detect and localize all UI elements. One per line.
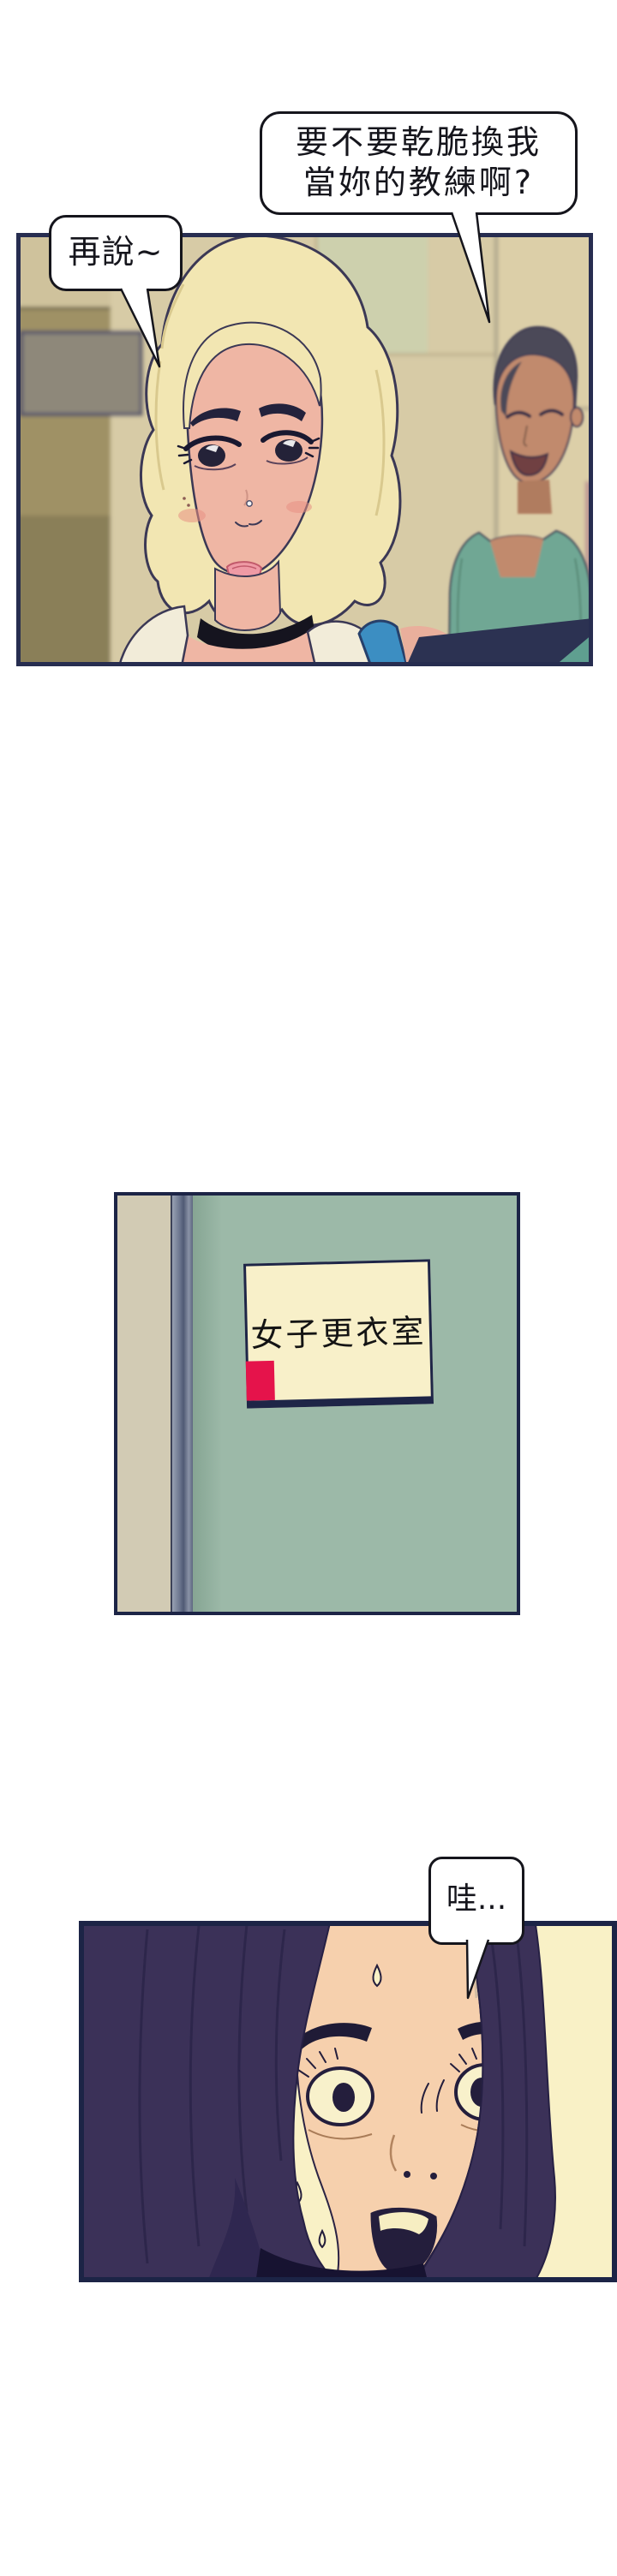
door-frame-strip <box>117 1196 172 1612</box>
speech-text-line1: 要不要乾脆換我 <box>262 122 575 163</box>
door-edge-strip <box>172 1196 193 1612</box>
speech-text-line2: 當妳的教練啊? <box>262 163 575 203</box>
sign-red-tag <box>246 1361 275 1401</box>
door-sign: 女子更衣室 <box>243 1259 434 1408</box>
blush-right <box>286 501 312 513</box>
speech-bubble-coach-offer: 要不要乾脆換我 當妳的教練啊? <box>260 111 578 215</box>
door-sign-text: 女子更衣室 <box>250 1313 427 1355</box>
webtoon-page: 要不要乾脆換我 當妳的教練啊? 再說~ <box>0 0 617 2576</box>
gym-scene-illustration <box>16 233 593 666</box>
speech-bubble-zaishuo: 再說~ <box>49 215 183 291</box>
speech-bubble-wa: 哇... <box>428 1857 524 1945</box>
door-shading <box>193 1196 222 1612</box>
speech-text: 哇... <box>446 1881 506 1917</box>
panel-gym-encounter <box>16 233 593 666</box>
panel-shocked-woman <box>79 1921 617 2282</box>
wall-monitor <box>21 332 141 414</box>
nose-stud <box>247 501 252 506</box>
speech-text: 再說~ <box>69 233 164 271</box>
shocked-woman-illustration <box>79 1921 617 2282</box>
panel-locker-room-door: 女子更衣室 <box>114 1192 520 1615</box>
blush-left <box>178 509 206 522</box>
